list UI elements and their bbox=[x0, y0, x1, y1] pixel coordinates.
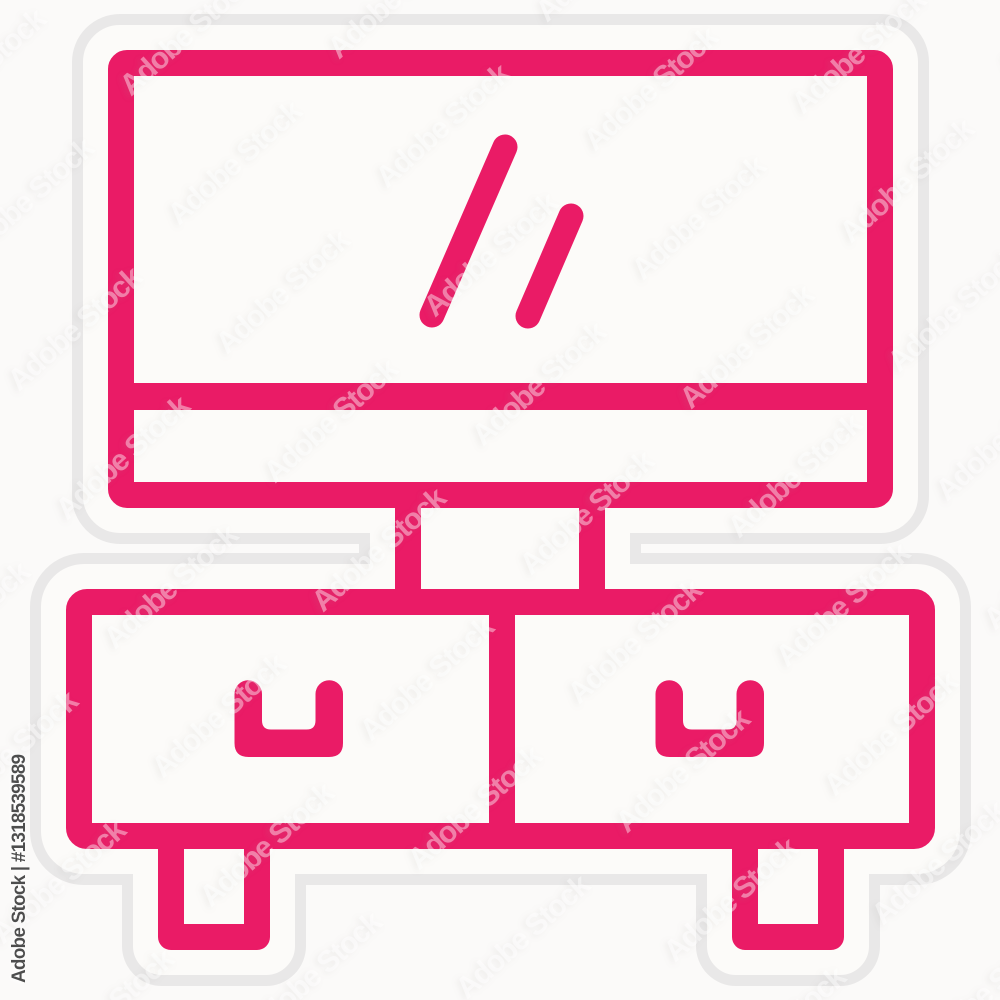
svg-text:Adobe Stock | #1318539589: Adobe Stock | #1318539589 bbox=[9, 755, 30, 983]
